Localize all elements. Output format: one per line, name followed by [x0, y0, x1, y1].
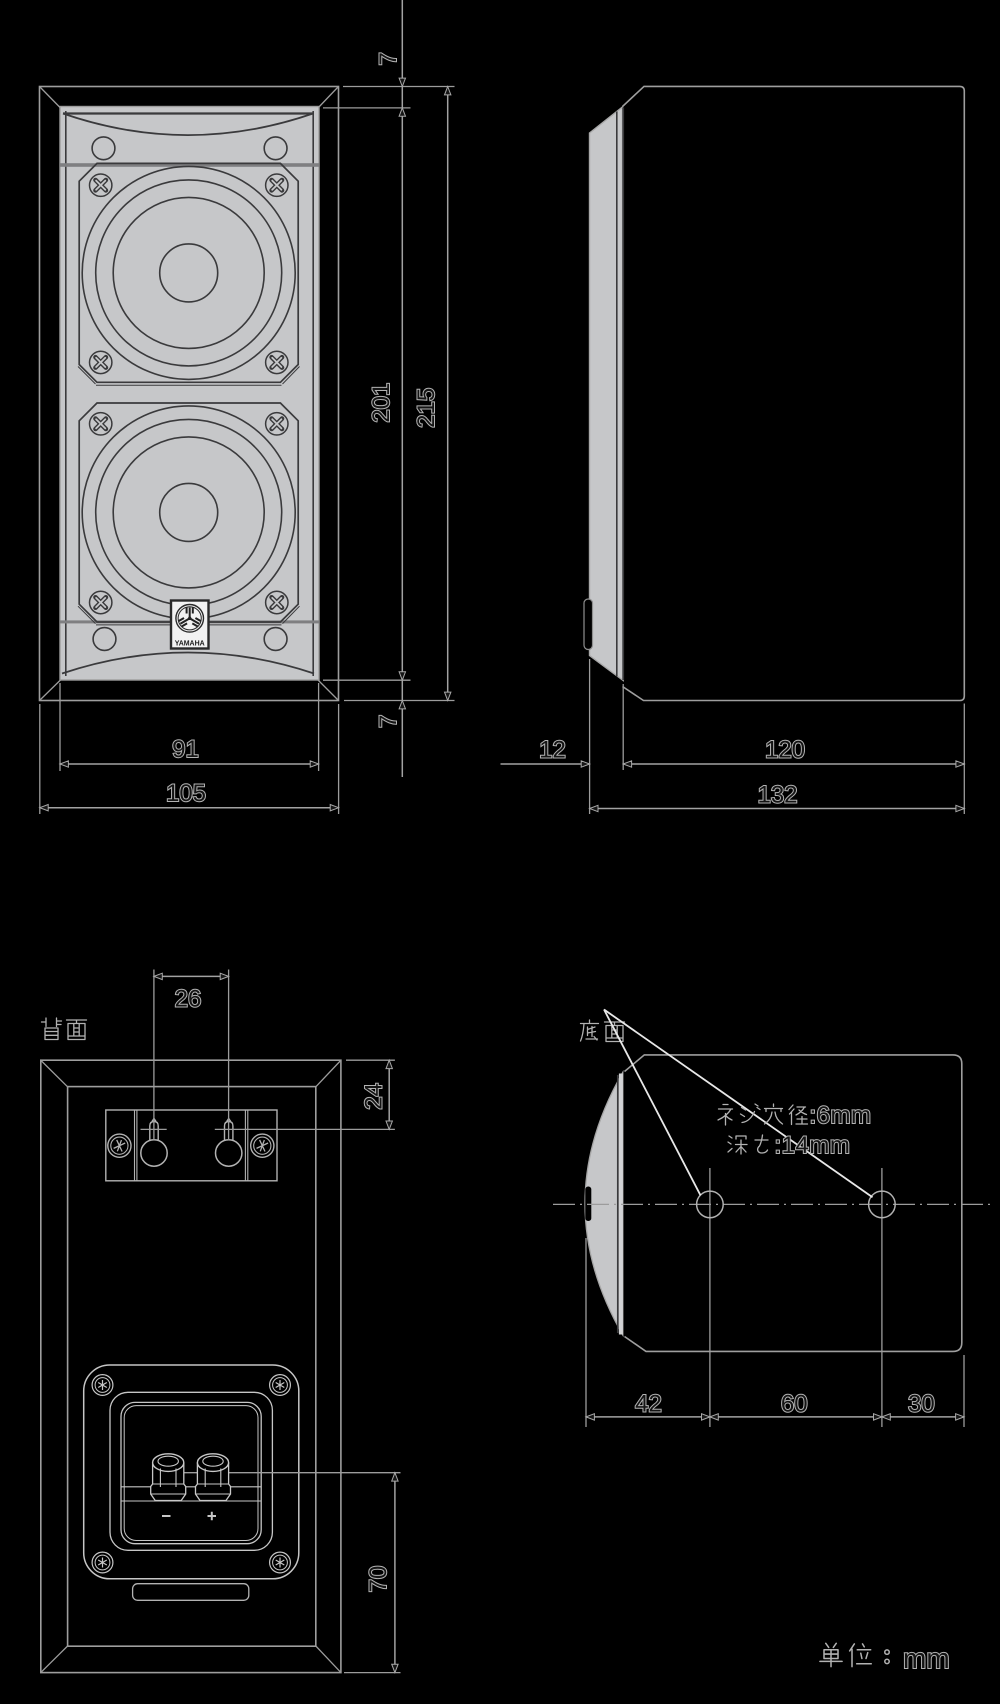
svg-text:201: 201 — [368, 383, 395, 423]
svg-text:91: 91 — [172, 736, 199, 763]
svg-text:42: 42 — [635, 1391, 662, 1418]
svg-text:105: 105 — [166, 780, 206, 807]
svg-text:7: 7 — [375, 52, 402, 65]
svg-text:mm: mm — [903, 1643, 950, 1674]
svg-text:60: 60 — [781, 1391, 808, 1418]
svg-text:24: 24 — [361, 1083, 388, 1110]
svg-text::14mm: :14mm — [775, 1132, 851, 1159]
svg-text:12: 12 — [539, 737, 566, 764]
svg-text:70: 70 — [365, 1566, 392, 1593]
svg-text:215: 215 — [413, 388, 440, 428]
svg-text::6mm: :6mm — [810, 1102, 872, 1129]
svg-text:YAMAHA: YAMAHA — [175, 639, 206, 648]
svg-text:7: 7 — [375, 715, 402, 728]
svg-text:120: 120 — [765, 737, 805, 764]
svg-text:132: 132 — [757, 782, 797, 809]
svg-text:30: 30 — [908, 1391, 935, 1418]
svg-text:26: 26 — [175, 986, 202, 1013]
